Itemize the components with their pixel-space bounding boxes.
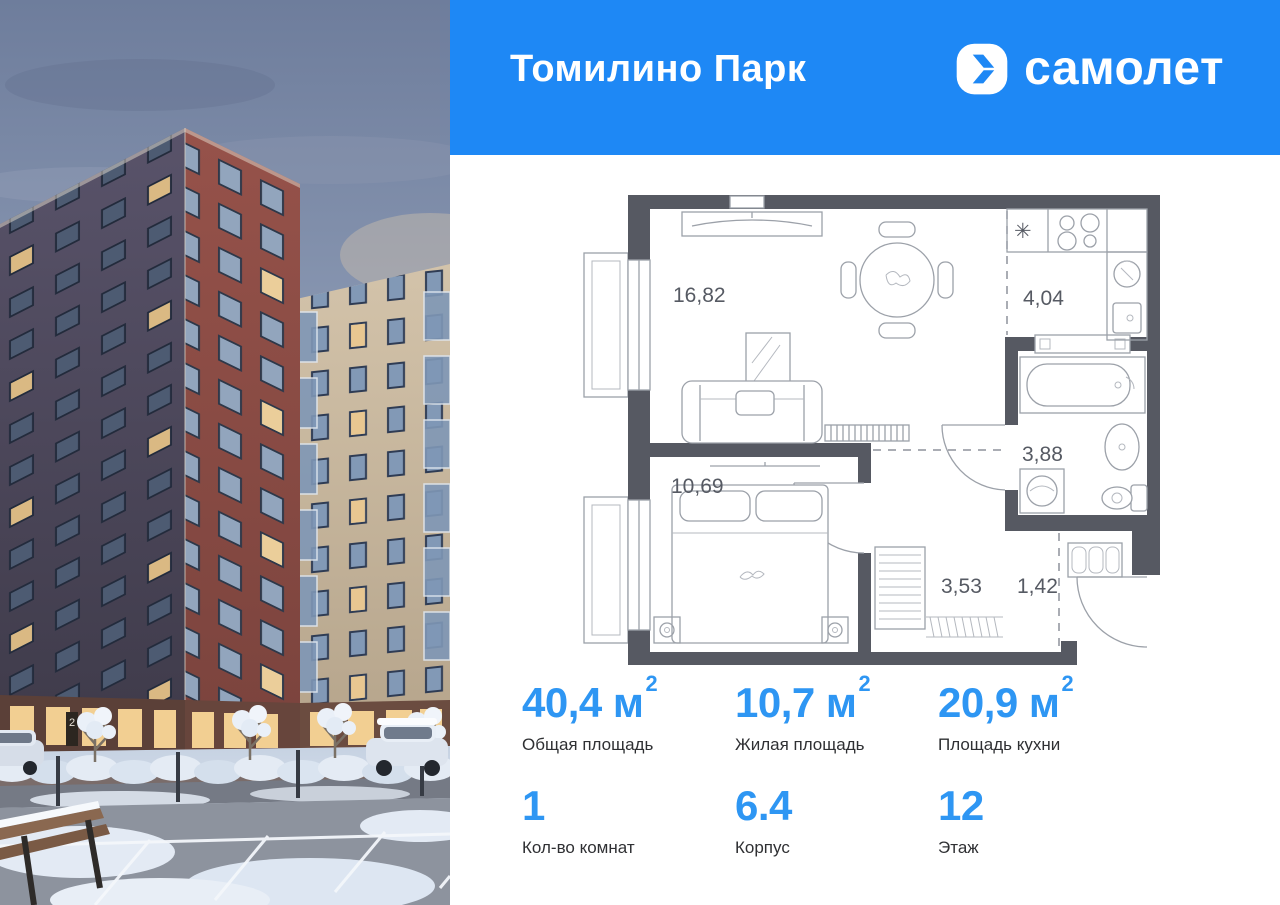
wardrobe — [875, 547, 925, 629]
shoe-rack-hatch — [926, 617, 1003, 637]
hallway-fixtures — [875, 543, 1122, 637]
fridge-icon: ✳ — [1014, 220, 1032, 243]
stat-value: 12 — [938, 785, 1168, 827]
stat-unit: м — [1018, 679, 1060, 726]
washing-machine — [1020, 469, 1064, 513]
stat-label: Жилая площадь — [735, 735, 938, 755]
room-label-bedroom: 10,69 — [671, 475, 724, 498]
stats-row-details: 1 Кол-во комнат 6.4 Корпус 12 Этаж — [522, 785, 1168, 858]
room-label-entry: 1,42 — [1017, 575, 1058, 598]
project-title: Томилино Парк — [510, 48, 806, 91]
balcony — [584, 253, 628, 643]
stats-row-areas: 40,4 м2 Общая площадь 10,7 м2 Жилая площ… — [522, 682, 1168, 755]
listing-card: 2 — [0, 0, 1280, 905]
stat-value: 20,9 м2 — [938, 682, 1168, 724]
stat-kitchen-area: 20,9 м2 Площадь кухни — [938, 682, 1168, 755]
room-label-living: 16,82 — [673, 284, 726, 307]
stat-building: 6.4 Корпус — [735, 785, 938, 858]
main-tower — [0, 128, 300, 758]
toilet — [1102, 485, 1147, 511]
stove-icon — [1058, 214, 1099, 250]
stat-sup: 2 — [1062, 671, 1074, 696]
stat-value: 40,4 м2 — [522, 682, 735, 724]
stat-value: 1 — [522, 785, 735, 827]
cloud — [5, 59, 275, 111]
stat-label: Этаж — [938, 838, 1168, 858]
bathroom-fixtures — [1020, 357, 1147, 513]
washbasin — [1105, 424, 1139, 470]
header: Томилино Парк самолет — [450, 0, 1280, 155]
winter-buildings-photo: 2 — [0, 0, 450, 905]
beige-tower — [292, 264, 450, 742]
living-room-furniture — [682, 212, 953, 443]
radiator — [825, 425, 909, 441]
samolet-arrow-icon — [955, 42, 1009, 96]
room-label-bathroom: 3,88 — [1022, 443, 1063, 466]
stat-label: Общая площадь — [522, 735, 735, 755]
stat-total-area: 40,4 м2 Общая площадь — [522, 682, 735, 755]
stat-label: Корпус — [735, 838, 938, 858]
stat-label: Площадь кухни — [938, 735, 1168, 755]
stat-sup: 2 — [859, 671, 871, 696]
stat-living-area: 10,7 м2 Жилая площадь — [735, 682, 938, 755]
stat-value: 10,7 м2 — [735, 682, 938, 724]
stat-value: 6.4 — [735, 785, 938, 827]
brand-name: самолет — [1024, 45, 1224, 93]
door — [794, 425, 1147, 647]
brand-logo: самолет — [955, 42, 1224, 96]
room-label-kitchen: 4,04 — [1023, 287, 1064, 310]
stat-rooms-count: 1 Кол-во комнат — [522, 785, 735, 858]
room-label-hallway: 3,53 — [941, 575, 982, 598]
stat-floor: 12 Этаж — [938, 785, 1168, 858]
stat-unit: м — [815, 679, 857, 726]
stat-sup: 2 — [646, 671, 658, 696]
entrance-number: 2 — [69, 717, 75, 729]
entry-cabinet — [1068, 543, 1122, 577]
stat-unit: м — [602, 679, 644, 726]
stat-label: Кол-во комнат — [522, 838, 735, 858]
kitchen-fixtures: ✳ — [1007, 209, 1147, 340]
floorplan: ✳ — [570, 185, 1170, 680]
